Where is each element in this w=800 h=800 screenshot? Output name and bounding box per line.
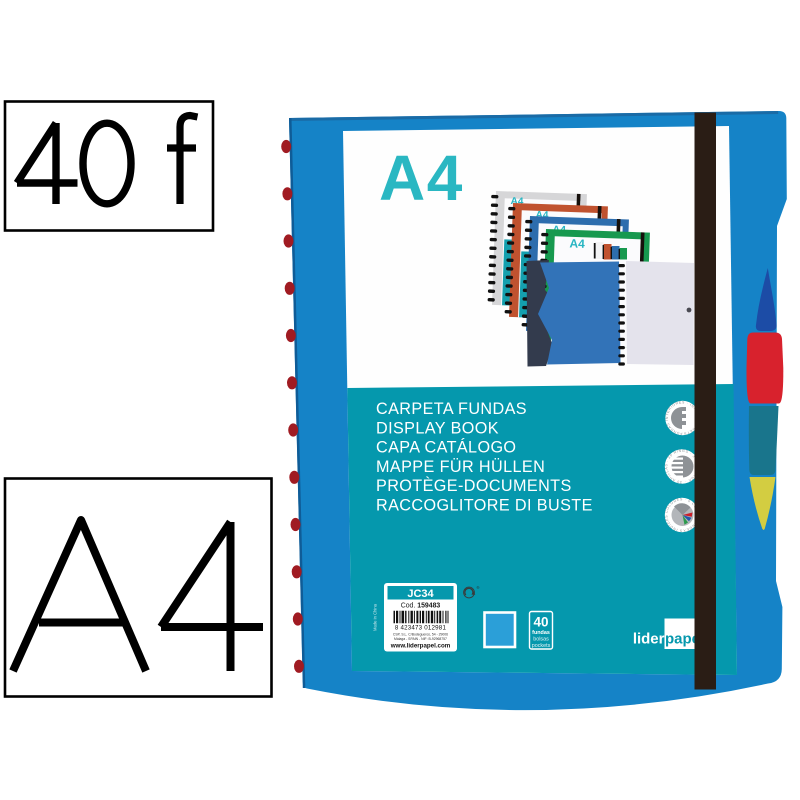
svg-text:®: ®: [477, 585, 480, 590]
svg-text:A4: A4: [569, 236, 585, 251]
svg-text:8 423473 012981: 8 423473 012981: [395, 625, 447, 632]
svg-text:bolsas: bolsas: [533, 637, 549, 643]
svg-text:MAPPE FÜR HÜLLEN: MAPPE FÜR HÜLLEN: [376, 458, 545, 476]
svg-text:Málaga - SPAIN - NIF: B-929687: Málaga - SPAIN - NIF: B-92968757: [394, 637, 447, 641]
svg-text:JC34: JC34: [407, 588, 434, 600]
svg-text:RACCOGLITORE DI BUSTE: RACCOGLITORE DI BUSTE: [376, 497, 593, 515]
svg-text:pockets: pockets: [532, 643, 551, 649]
svg-text:Cod. 159483: Cod. 159483: [401, 603, 441, 610]
svg-text:CAPA CATÁLOGO: CAPA CATÁLOGO: [376, 438, 516, 457]
svg-text:A4: A4: [379, 142, 464, 214]
svg-text:Made in China: Made in China: [373, 603, 378, 631]
svg-text:40: 40: [533, 615, 548, 630]
svg-text:fundas: fundas: [532, 630, 550, 636]
svg-text:lider: lider: [633, 631, 665, 648]
svg-text:DISPLAY BOOK: DISPLAY BOOK: [376, 419, 499, 437]
svg-text:PROTÈGE-DOCUMENTS: PROTÈGE-DOCUMENTS: [376, 476, 572, 495]
svg-text:www.liderpapel.com: www.liderpapel.com: [390, 643, 451, 650]
svg-text:CARPETA FUNDAS: CARPETA FUNDAS: [376, 400, 527, 418]
